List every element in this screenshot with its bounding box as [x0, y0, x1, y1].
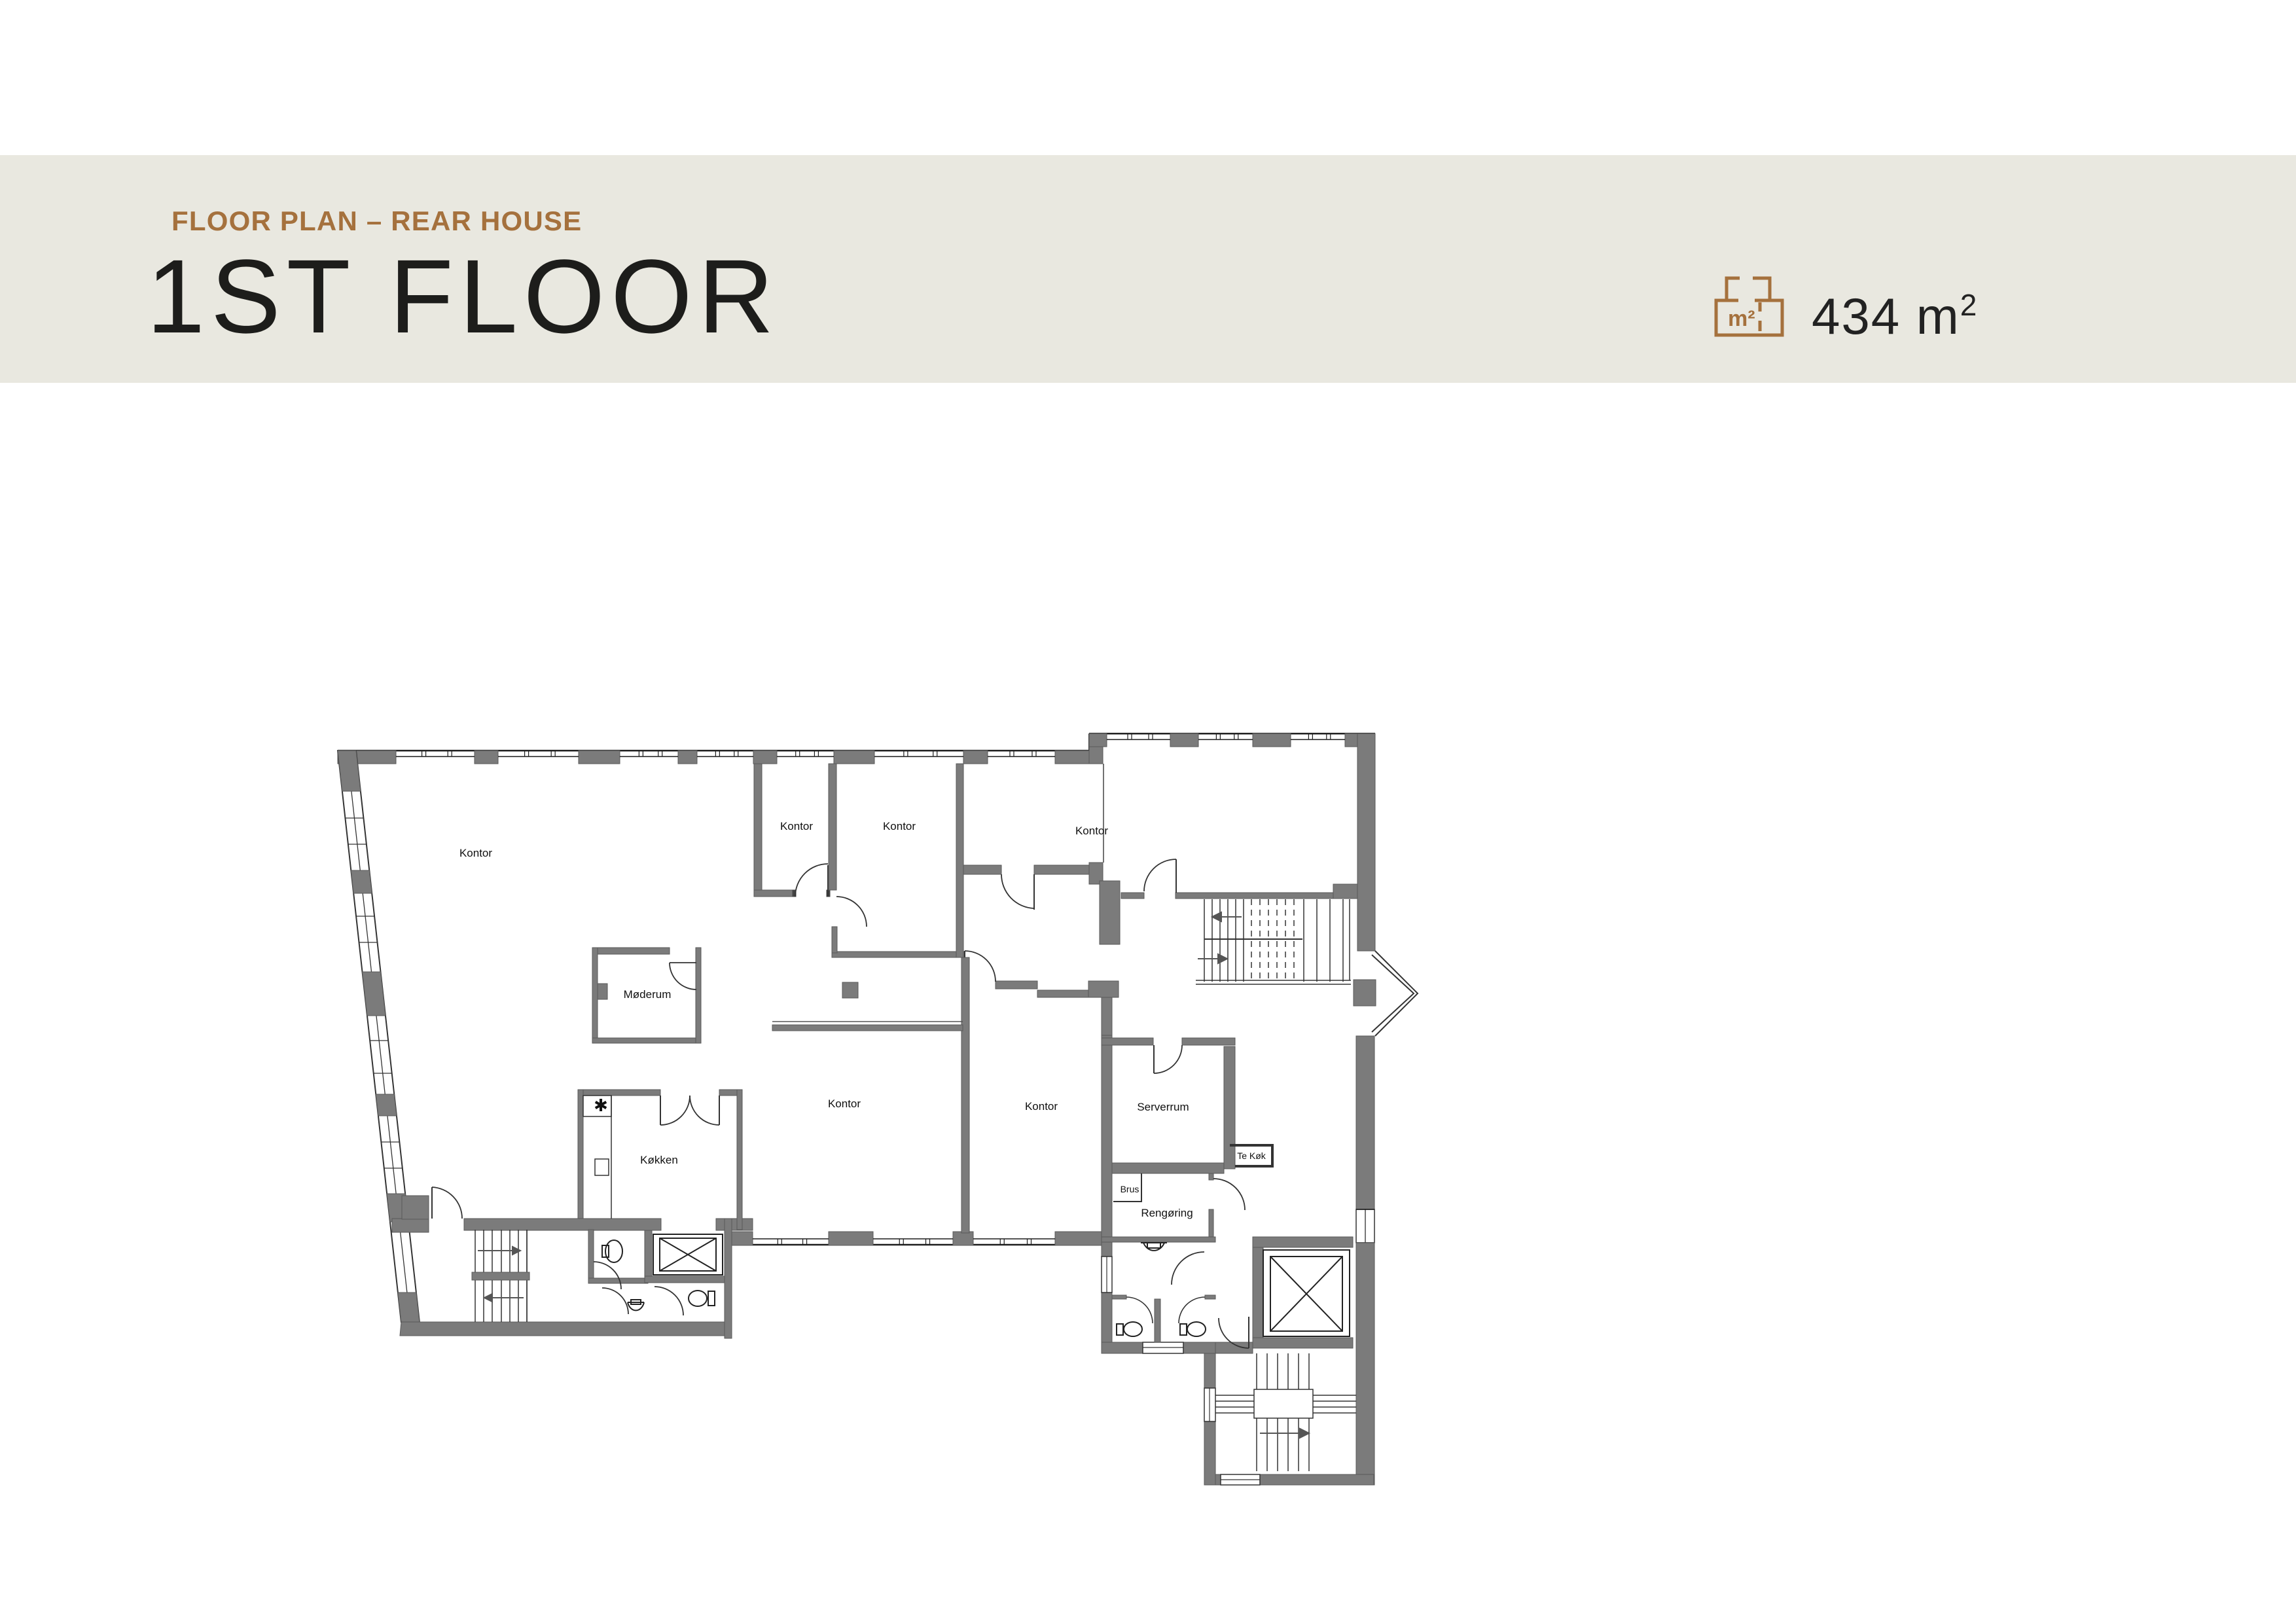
svg-text:Møderum: Møderum	[624, 988, 672, 1001]
svg-text:Serverrum: Serverrum	[1137, 1101, 1189, 1113]
svg-text:Kontor: Kontor	[1025, 1100, 1058, 1113]
svg-text:Kontor: Kontor	[828, 1097, 861, 1110]
svg-text:Kontor: Kontor	[1075, 825, 1108, 837]
svg-text:Te Køk: Te Køk	[1237, 1150, 1266, 1161]
svg-text:Brus: Brus	[1121, 1184, 1139, 1194]
svg-text:Kontor: Kontor	[780, 820, 813, 832]
svg-text:Rengøring: Rengøring	[1141, 1207, 1193, 1219]
svg-text:Kontor: Kontor	[883, 820, 916, 832]
svg-text:Køkken: Køkken	[640, 1154, 678, 1166]
svg-text:Kontor: Kontor	[459, 847, 492, 859]
svg-text:✱: ✱	[594, 1096, 608, 1115]
